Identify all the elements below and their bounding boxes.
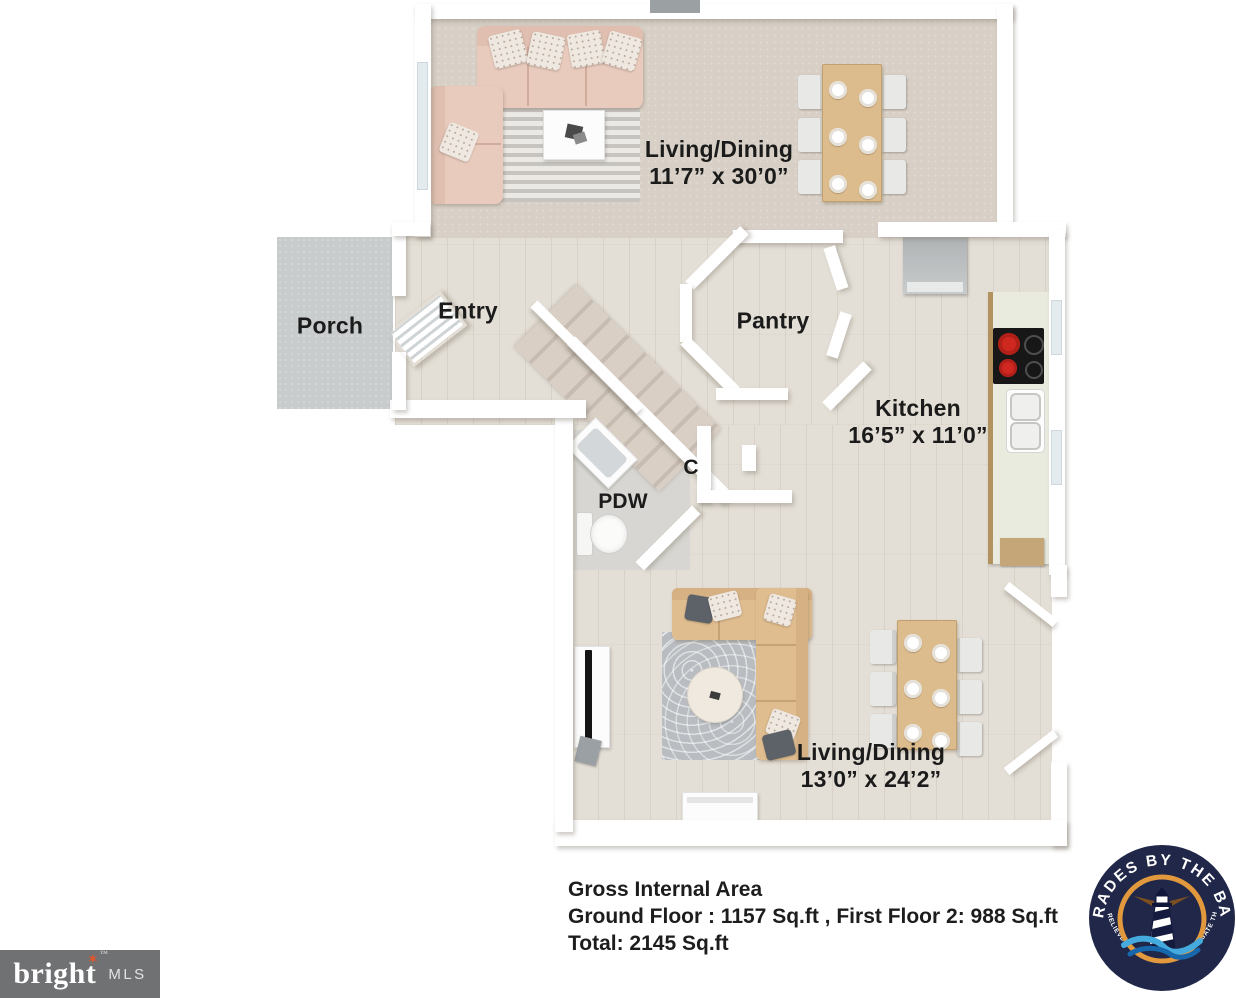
wall-right-upper [997,4,1013,230]
room-name: Living/Dining [797,739,945,766]
wall-porch-east-b [392,352,406,410]
room-dims: 13’0” x 24’2” [797,766,945,793]
wall-bottom [555,820,1067,846]
cooktop [993,328,1044,384]
label-pantry: Pantry [737,308,810,335]
bright-mls-logo: bright ✶ ™ MLS [0,950,160,998]
wall-entry-bottom [390,400,586,418]
label-powder-room: PDW [598,490,648,514]
pantry-wall-bottom [716,388,788,400]
loveseat [429,86,503,204]
area-summary-total: Total: 2145 Sq.ft [568,930,1058,957]
refrigerator [903,232,967,294]
label-kitchen: Kitchen 16’5” x 11’0” [848,395,987,449]
wall-left-lower [555,418,573,832]
pantry-wall-top [733,230,843,243]
wall-corner-jog [392,222,430,236]
bright-wordmark: bright ✶ ™ [13,959,96,989]
pantry-wall-left [680,284,692,342]
area-summary-title: Gross Internal Area [568,876,1058,903]
closet-wall-stub [742,445,756,471]
room-name: Kitchen [848,395,987,422]
dining-set-upper [790,60,910,210]
room-dims: 16’5” x 11’0” [848,422,987,449]
toilet [576,510,628,556]
tv-console [574,646,610,748]
counter-end-cabinet [1000,538,1044,566]
label-porch: Porch [297,313,363,340]
area-summary: Gross Internal Area Ground Floor : 1157 … [568,876,1058,957]
closet-wall-horiz [697,490,792,503]
star-icon: ✶ [88,953,99,965]
label-entry: Entry [438,298,498,325]
window-right-kitchen-b [1051,430,1062,485]
wall-right-kitchen [1049,230,1065,575]
chimney-vent [650,0,700,13]
round-coffee-table [688,668,742,722]
label-closet: C [683,456,698,480]
label-living-dining-lower: Living/Dining 13’0” x 24’2” [797,739,945,793]
room-name: Living/Dining [645,136,793,163]
television [585,650,592,742]
trademark-symbol: ™ [100,950,109,958]
window-right-kitchen-a [1051,300,1062,355]
kitchen-sink [1007,390,1044,452]
label-living-dining-upper: Living/Dining 11’7” x 30’0” [645,136,793,190]
trades-by-the-bay-logo: TRADES BY THE BAY LET US RELIEVE THE STR… [1088,844,1236,992]
mls-text: MLS [108,966,146,983]
room-dims: 11’7” x 30’0” [645,163,793,190]
wall-kitchen-top [878,222,1066,237]
window-left-upper [417,62,428,190]
coffee-table [543,110,605,160]
area-summary-floors: Ground Floor : 1157 Sq.ft , First Floor … [568,903,1058,930]
wall-top [415,4,1013,19]
floorplan-canvas: Living/Dining 11’7” x 30’0” Porch Entry … [0,0,1236,998]
wall-right-lower-a [1051,565,1067,597]
